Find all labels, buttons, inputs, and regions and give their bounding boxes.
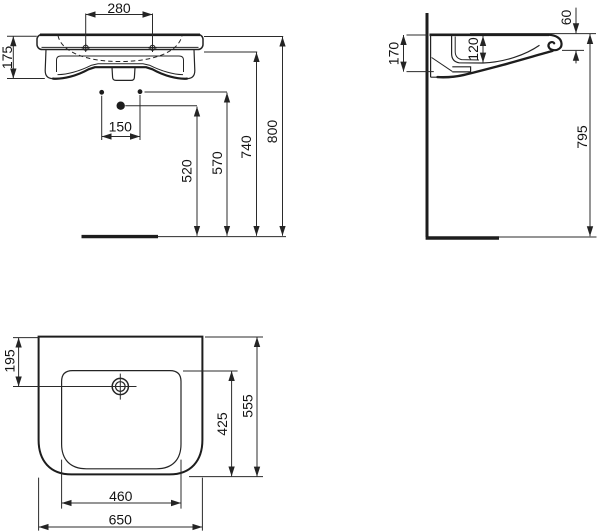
technical-drawing-sheet: 280 175 150 520 570 740 800 (0, 0, 600, 531)
dim-label-drain-setback: 195 (2, 349, 18, 373)
fixing-hole-left (99, 90, 104, 95)
dim-label-overall-width: 650 (109, 511, 133, 527)
plan-bowl-outline (62, 371, 181, 469)
dim-label-top-surface-height: 795 (574, 125, 590, 149)
dim-label-tap-hole-spacing: 280 (107, 0, 131, 16)
dim-label-drain-height: 520 (179, 159, 195, 183)
dim-label-fixing-height: 570 (209, 151, 225, 175)
plan-view-dimensions: 195 425 555 460 650 (2, 337, 264, 531)
fixing-hole-right (138, 89, 143, 94)
dim-label-back-height: 170 (386, 42, 402, 66)
dim-label-bowl-depth-inside: 120 (465, 37, 481, 61)
side-view (426, 13, 597, 238)
side-view-dimensions: 170 120 60 795 (386, 8, 591, 237)
side-underside-profile (438, 51, 553, 77)
dim-label-bowl-width: 460 (109, 488, 133, 504)
front-body-right-edge (187, 50, 195, 79)
front-drain-housing (112, 67, 135, 80)
front-underside-inner-line (58, 64, 184, 75)
front-body-left-edge (45, 50, 53, 79)
dim-label-fixing-spacing: 150 (109, 119, 133, 135)
dim-label-rim-height: 800 (264, 120, 280, 144)
side-front-edge-curl (548, 35, 561, 50)
dim-label-bowl-depth: 425 (214, 412, 230, 436)
dim-label-overall-depth: 555 (240, 394, 256, 418)
drain-point (117, 102, 125, 110)
dim-label-underside-height: 740 (238, 135, 254, 159)
dim-label-front-edge-height: 60 (558, 10, 574, 26)
plan-view (13, 337, 202, 475)
hidden-bowl-outline (58, 36, 182, 62)
dim-label-body-height: 175 (0, 46, 15, 70)
side-diagonal-line (432, 58, 453, 72)
side-outlet-stub (452, 67, 470, 72)
washbasin-installation-drawing: 280 175 150 520 570 740 800 (0, 0, 600, 531)
